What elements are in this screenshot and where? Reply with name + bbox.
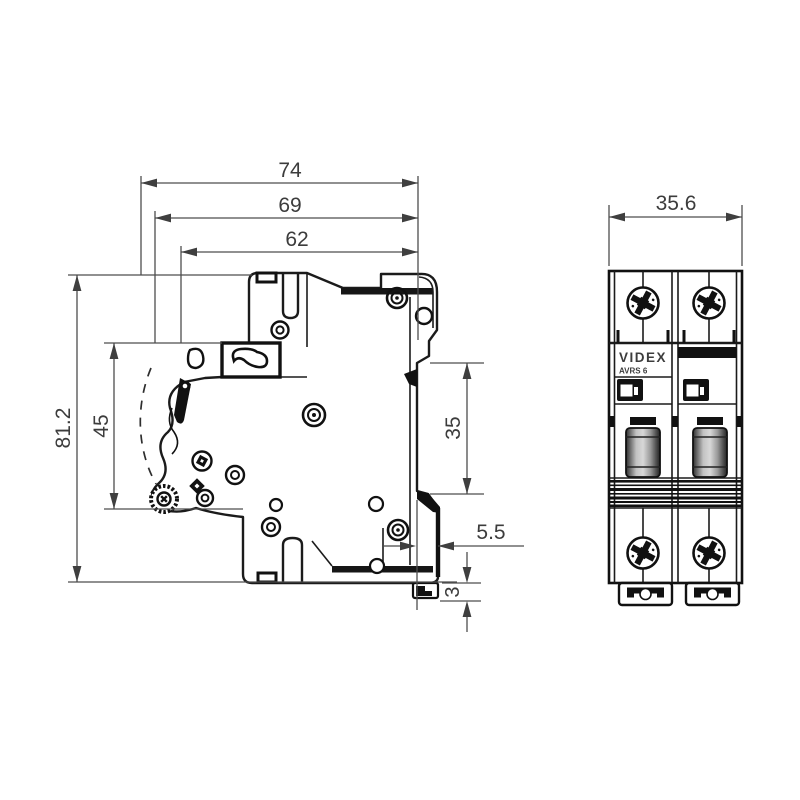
indicator-window: [683, 379, 709, 401]
phillips-screw-icon: [692, 286, 726, 320]
top-slot: [283, 273, 298, 318]
din-upper-claw: [404, 369, 417, 387]
dim-35-6-label: 35.6: [656, 192, 697, 215]
case-hole: [188, 349, 203, 368]
bottom-notch: [258, 573, 276, 582]
dim-3: 3: [440, 552, 481, 632]
phillips-screw-icon: [626, 536, 660, 570]
phillips-screw-icon: [626, 286, 660, 320]
mechanism-swing-arc: [140, 368, 156, 484]
dim-74: 74: [141, 159, 418, 340]
dim-62-label: 62: [285, 228, 308, 251]
din-rail-clip: [686, 583, 739, 605]
side-view: [140, 273, 440, 598]
toggle-lever: [626, 428, 660, 477]
square-rivet: [193, 452, 212, 471]
dim-69-label: 69: [278, 194, 301, 217]
side-body-outline: [152, 273, 438, 583]
label-band-right: [678, 347, 737, 358]
brand-logo: VIDEX: [619, 350, 667, 365]
case-pin: [369, 497, 383, 511]
dim-5-5-label: 5.5: [476, 521, 505, 544]
mcb-dimensional-drawing: VIDEX AVRS 6: [0, 0, 800, 800]
model-label: AVRS 6: [619, 367, 648, 376]
case-pin: [270, 499, 282, 511]
bottom-slot: [283, 538, 302, 582]
dim-35: 35: [430, 363, 484, 494]
dim-81-2-label: 81.2: [52, 408, 75, 449]
din-rail-clip: [619, 583, 672, 605]
dim-45: 45: [90, 343, 243, 509]
phillips-screw-icon: [692, 536, 726, 570]
toggle-lever: [693, 428, 727, 477]
front-view: VIDEX AVRS 6: [609, 271, 742, 605]
dim-69: 69: [155, 194, 418, 343]
dim-45-label: 45: [90, 414, 113, 437]
dim-74-label: 74: [278, 159, 302, 182]
technical-drawing-page: VIDEX AVRS 6: [0, 0, 800, 800]
dim-62: 62: [181, 228, 418, 343]
dim-35-label: 35: [442, 416, 465, 439]
indicator-window: [617, 379, 643, 401]
dim-3-label: 3: [442, 586, 464, 597]
top-notch: [257, 273, 276, 282]
dim-35-6: 35.6: [609, 192, 742, 266]
case-pin: [370, 559, 384, 573]
